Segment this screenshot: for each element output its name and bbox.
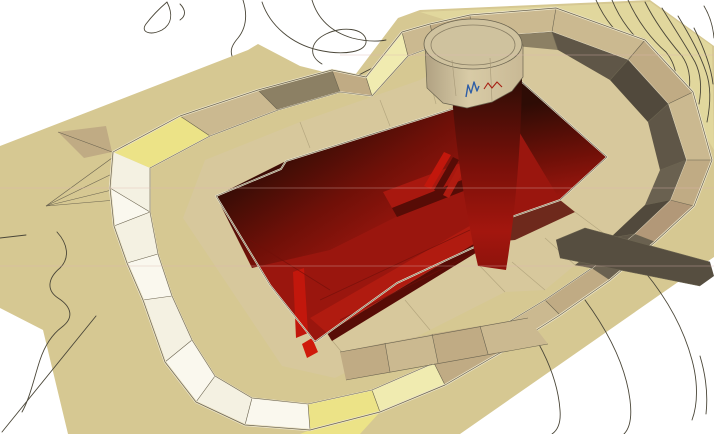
contour-line	[180, 4, 185, 20]
contour-line	[704, 6, 714, 38]
shaft-top-cap	[424, 19, 522, 69]
contour-line	[144, 2, 171, 33]
contour-line	[312, 0, 386, 41]
terrain-model-rendering	[0, 0, 714, 434]
contour-line	[700, 356, 707, 414]
contour-line	[231, 0, 245, 56]
terrain-model-viewport	[0, 0, 714, 434]
